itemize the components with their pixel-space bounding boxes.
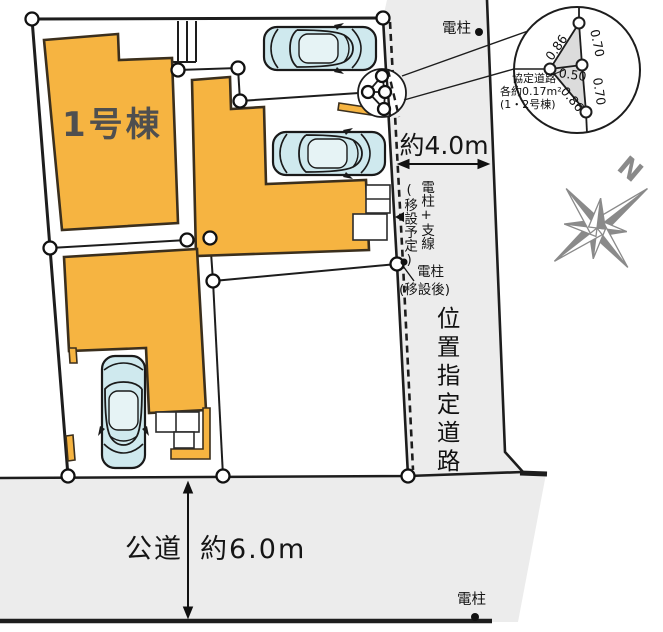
pole-bottom-dot: [471, 613, 479, 621]
road-bottom-name-label: 公道: [125, 536, 183, 564]
road-right-name-label: 位置指定道路: [434, 306, 459, 477]
car-middle: [273, 128, 385, 179]
building-3-step: [174, 432, 194, 448]
car-top: [264, 23, 376, 74]
site-plan: 0.86 0.70 0.50 0.86 0.70: [0, 0, 663, 632]
garden-post: [66, 435, 75, 461]
pole-after-label-line2: (移設後): [399, 283, 450, 297]
pole-relocation-label-line1: 電柱+支線: [419, 180, 433, 250]
car-bottom: [98, 356, 149, 468]
building-3-wall-tab: [69, 348, 77, 363]
road-right-width-label: 約4.0m: [394, 133, 494, 159]
building-2-terrace: [353, 214, 387, 240]
agreement-road-note-line3: (1・2号棟): [500, 99, 566, 112]
pole-relocation-label-line2: (移設予定): [402, 182, 416, 268]
pole-top-dot: [475, 28, 483, 36]
agreement-road-note-line2: 各約0.17m²: [500, 86, 566, 99]
pole-bottom-label: 電柱: [457, 593, 486, 608]
building-3-porch: [156, 412, 199, 432]
road-bottom-width-label: 約6.0m: [200, 536, 306, 564]
pole-top-label: 電柱: [442, 22, 471, 37]
building-1-label: 1号棟: [62, 108, 163, 144]
compass-rose-icon: [554, 189, 647, 268]
pole-after-label-line1: 電柱: [417, 265, 444, 279]
buildings: [44, 34, 369, 413]
agreement-road-note: 協定道路 各約0.17m² (1・2号棟): [500, 73, 566, 112]
